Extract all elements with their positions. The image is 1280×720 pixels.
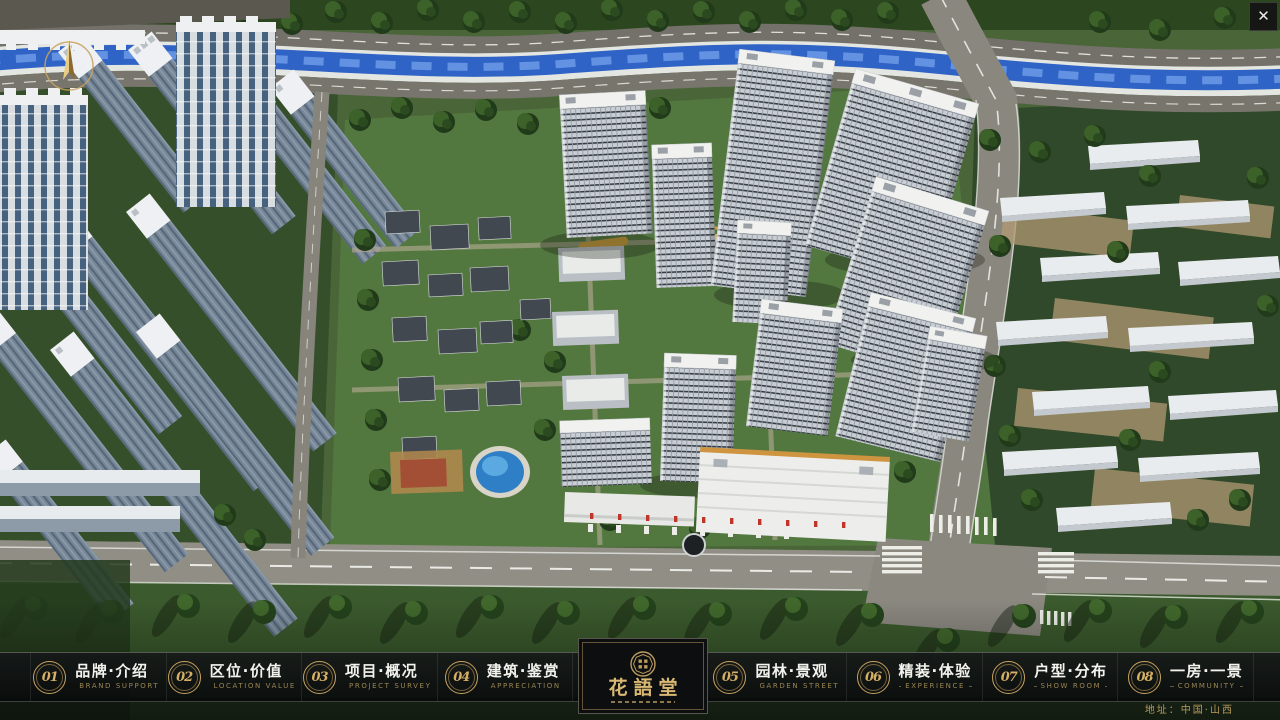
logo-divider [611,701,675,703]
nav-label: 一房·一景 [1170,664,1243,680]
nav-sublabel: EXPERIENCE [899,682,972,690]
nav-label: 项目·概况 [345,664,435,680]
address-text: 地址：中国·山西 [1145,701,1234,716]
nav-group-left: 01 品牌·介绍 BRAND SUPPORT 02 区位·价值 LOCATION… [30,653,573,701]
nav-sublabel: GARDEN STREET [755,682,843,690]
app-window: ✕ 01 品牌·介绍 BRAND SUPPORT 02 区位·价值 LOCATI… [0,0,1280,720]
nav-item-views[interactable]: 08 一房·一景 COMMUNITY [1118,653,1254,701]
nav-item-architecture[interactable]: 04 建筑·鉴赏 APPRECIATION [438,653,574,701]
nav-label: 户型·分布 [1034,664,1107,680]
nav-label: 品牌·介绍 [75,664,163,680]
nav-group-right: 05 园林·景观 GARDEN STREET 06 精装·体验 EXPERIEN… [711,653,1254,701]
nav-sublabel: SHOW ROOM [1034,682,1107,690]
nav-item-location[interactable]: 02 区位·价值 LOCATION VALUE [167,653,303,701]
close-button[interactable]: ✕ [1249,2,1278,31]
compass-icon [40,34,98,94]
nav-sublabel: APPRECIATION [487,682,565,690]
nav-label: 区位·价值 [210,664,300,680]
nav-number-badge: 04 [445,661,478,694]
nav-sublabel: BRAND SUPPORT [75,682,163,690]
nav-item-project[interactable]: 03 项目·概况 PROJECT SURVEY [302,653,438,701]
nav-number-badge: 07 [992,661,1025,694]
nav-sublabel: COMMUNITY [1170,682,1243,690]
project-logo: 花語堂 [578,638,708,714]
nav-number-badge: 05 [713,661,746,694]
nav-label: 园林·景观 [755,664,843,680]
nav-item-brand[interactable]: 01 品牌·介绍 BRAND SUPPORT [30,653,167,701]
nav-number-badge: 06 [857,661,890,694]
logo-title: 花語堂 [602,679,683,698]
nav-item-garden[interactable]: 05 园林·景观 GARDEN STREET [711,653,847,701]
nav-item-interior[interactable]: 06 精装·体验 EXPERIENCE [847,653,983,701]
nav-number-badge: 08 [1128,661,1161,694]
nav-number-badge: 03 [303,661,336,694]
nav-label: 精装·体验 [899,664,972,680]
masterplan-render [0,0,1280,720]
nav-label: 建筑·鉴赏 [487,664,565,680]
nav-item-floorplan[interactable]: 07 户型·分布 SHOW ROOM [983,653,1119,701]
swimming-pool [470,446,530,498]
nav-number-badge: 01 [33,661,66,694]
seal-emblem-icon [629,650,657,678]
nav-sublabel: PROJECT SURVEY [345,682,435,690]
nav-sublabel: LOCATION VALUE [210,682,300,690]
close-icon: ✕ [1257,9,1270,24]
nav-number-badge: 02 [168,661,201,694]
